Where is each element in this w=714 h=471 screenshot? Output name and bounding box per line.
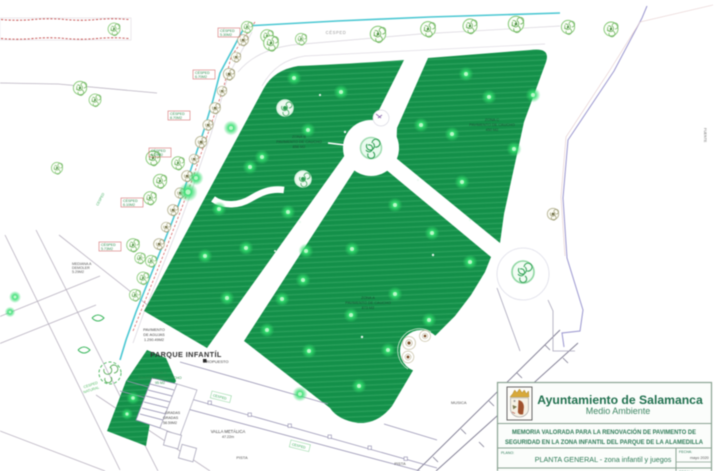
svg-text:5.29M2: 5.29M2 [151, 153, 163, 157]
svg-text:PROPUESTO: PROPUESTO [203, 359, 228, 364]
svg-text:GRADAS: GRADAS [163, 416, 179, 420]
svg-text:6.70M2: 6.70M2 [195, 75, 207, 79]
svg-text:1.290.49M2: 1.290.49M2 [144, 338, 164, 342]
svg-text:PAVIMENTO DE CAUCHO: PAVIMENTO DE CAUCHO [469, 123, 515, 127]
svg-text:856 M2: 856 M2 [293, 145, 306, 149]
svg-text:ZONA B: ZONA B [292, 135, 306, 139]
svg-text:8.70M2: 8.70M2 [170, 116, 182, 120]
svg-text:47.22m: 47.22m [222, 435, 234, 439]
svg-text:ZONA D: ZONA D [153, 371, 167, 375]
svg-text:GRADAS: GRADAS [165, 411, 181, 415]
svg-text:873 M2: 873 M2 [362, 306, 375, 310]
svg-text:5.30M2: 5.30M2 [220, 33, 232, 37]
svg-text:95 M2: 95 M2 [155, 381, 165, 385]
svg-text:Medio Ambiente: Medio Ambiente [586, 406, 651, 416]
svg-text:PAVIMENTO DE CAUCHO: PAVIMENTO DE CAUCHO [276, 140, 322, 144]
svg-text:6.10M2: 6.10M2 [123, 203, 135, 207]
svg-text:PISTA: PISTA [236, 455, 248, 460]
svg-text:FUENTE: FUENTE [703, 128, 707, 143]
svg-text:MUSICA: MUSICA [451, 400, 467, 405]
svg-text:5.29M2: 5.29M2 [72, 270, 84, 274]
svg-text:Ayuntamiento de Salamanca: Ayuntamiento de Salamanca [537, 393, 703, 407]
svg-text:PISTA: PISTA [394, 461, 406, 466]
svg-text:mayo 2020: mayo 2020 [690, 456, 709, 460]
svg-text:PLANTA GENERAL - zona infantil: PLANTA GENERAL - zona infantil y juegos [535, 455, 672, 464]
svg-text:5.73M2: 5.73M2 [101, 247, 113, 251]
svg-text:SEGURIDAD EN LA ZONA INFANTIL: SEGURIDAD EN LA ZONA INFANTIL DEL PARQUE… [505, 439, 703, 446]
svg-text:PLANO:: PLANO: [501, 451, 514, 455]
svg-text:450 M2: 450 M2 [486, 128, 499, 132]
svg-text:MEMORIA VALORADA PARA LA RENOV: MEMORIA VALORADA PARA LA RENOVACIÓN DE P… [512, 427, 697, 436]
svg-text:ZONA C: ZONA C [485, 118, 499, 122]
svg-text:CÉSPED: CÉSPED [326, 30, 347, 35]
svg-text:FECHA:: FECHA: [679, 450, 692, 454]
svg-text:VALLA METÁLICA: VALLA METÁLICA [211, 429, 246, 434]
svg-text:ZONA A: ZONA A [361, 296, 375, 300]
svg-text:PAVIMENTO: PAVIMENTO [143, 328, 165, 332]
svg-text:PAVIMENTO DE CAUCHO: PAVIMENTO DE CAUCHO [345, 301, 391, 305]
svg-text:DE AGUJAS: DE AGUJAS [143, 333, 165, 337]
svg-text:PARQUE INFANTÍL: PARQUE INFANTÍL [150, 350, 222, 359]
svg-text:58.59M2: 58.59M2 [163, 421, 177, 425]
svg-text:PAVIMENTO DE CAUCHO: PAVIMENTO DE CAUCHO [138, 376, 181, 380]
